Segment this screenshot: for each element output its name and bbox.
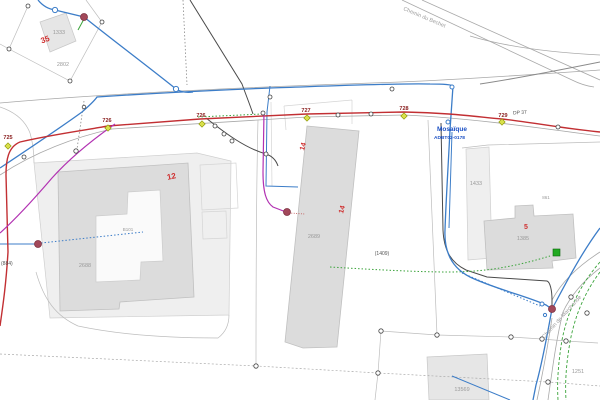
vertex-marker [26, 4, 30, 8]
vertex-marker [376, 371, 380, 375]
vertex-marker [7, 47, 11, 51]
blue-service-center[interactable] [266, 86, 298, 187]
network-node-code-label: ADBT02-0178 [434, 135, 465, 141]
building-13569 [427, 354, 489, 400]
vertex-marker [213, 124, 217, 128]
vertex-marker [230, 139, 234, 143]
vertex-marker [82, 105, 86, 109]
boundary-center-vertical [256, 120, 258, 366]
diagonal-street-edge-2 [422, 0, 600, 80]
network-node-name-label: Mosaïque [437, 126, 467, 133]
network-node-marker[interactable] [284, 209, 291, 216]
dark-network-line-topleft[interactable] [190, 0, 253, 114]
long-dashed-boundary [0, 354, 600, 386]
green-equipment-marker[interactable] [553, 249, 560, 256]
support-point-label-727: 727 [301, 108, 310, 114]
boundary-mid-connectors [375, 331, 381, 400]
vertex-marker [336, 113, 340, 117]
vertex-marker [264, 152, 268, 156]
dark-network-line-right[interactable] [441, 123, 552, 308]
support-point-diamond-728[interactable] [401, 113, 407, 119]
vertex-marker [546, 380, 550, 384]
support-point-label-728: 728 [399, 106, 408, 112]
green-dashed-line-br-2[interactable] [566, 272, 600, 400]
blue-node-marker[interactable] [450, 85, 454, 89]
parcel-label-1385: 1385 [517, 236, 529, 242]
parcel-label-1433: 1433 [470, 181, 482, 187]
vertex-marker [100, 20, 104, 24]
building-2689 [285, 126, 359, 348]
vertex-marker [379, 329, 383, 333]
support-point-label-726: 726 [102, 118, 111, 124]
vertex-marker [261, 111, 265, 115]
network-node-marker[interactable] [81, 14, 88, 21]
vertex-marker [369, 112, 373, 116]
blue-node-marker[interactable] [173, 86, 178, 91]
blue-node-marker[interactable] [52, 7, 57, 12]
boundary-right-vertical [428, 120, 437, 335]
street-fork-branch [470, 36, 600, 55]
street-label-marchande: Chemin de Marchande [541, 295, 583, 340]
parcel-label-13569: 13569 [454, 387, 469, 393]
vertex-marker [390, 87, 394, 91]
vertex-marker [74, 149, 78, 153]
support-point-diamond-726b[interactable] [199, 121, 205, 127]
support-point-label-729: 729 [498, 113, 507, 119]
blue-node-marker[interactable] [543, 313, 546, 316]
street-br-edge-2 [548, 268, 600, 400]
blue-node-marker[interactable] [540, 302, 544, 306]
vertex-marker [254, 364, 258, 368]
support-point-diamond-727[interactable] [304, 115, 310, 121]
vertex-marker [564, 339, 568, 343]
support-point-label-726b: 726 [196, 113, 205, 119]
map-viewport[interactable]: Chemin du Bechet Chemin de Marchande DP … [0, 0, 600, 400]
parcel-label-2689: 2689 [308, 234, 320, 240]
support-point-label-725: 725 [3, 135, 12, 141]
plot-number-5: 5 [524, 224, 528, 231]
vertex-marker [569, 295, 573, 299]
cable-ref-label-884: (884) [1, 261, 13, 267]
network-node-marker[interactable] [35, 241, 42, 248]
vertex-marker [268, 95, 272, 99]
road-ref-label: DP 37 [513, 110, 527, 117]
diagonal-street-edge-1 [402, 0, 594, 87]
blue-node-marker[interactable] [446, 120, 450, 124]
vertex-marker [585, 311, 589, 315]
parcel-label-B101: B101 [123, 227, 134, 232]
parcel-label-861: 861 [542, 195, 550, 200]
vertex-marker [556, 125, 560, 129]
parcel-label-1333: 1333 [53, 30, 65, 36]
parcel-label-2688: 2688 [79, 263, 91, 269]
vertex-marker [435, 333, 439, 337]
parcel-label-1251: 1251 [572, 369, 584, 375]
building-1385 [484, 205, 576, 270]
support-point-diamond-725[interactable] [5, 143, 11, 149]
cable-ref-label-1409: (1409) [375, 251, 390, 257]
dotted-boundary-top [183, 0, 187, 85]
network-node-marker[interactable] [549, 306, 556, 313]
vertex-marker [68, 79, 72, 83]
map-canvas[interactable]: Chemin du Bechet Chemin de Marchande DP … [0, 0, 600, 400]
boundary-right-top [462, 142, 600, 148]
parcels-and-buildings [34, 13, 576, 400]
parcel-label-2802: 2802 [57, 62, 69, 68]
vertex-marker [22, 155, 26, 159]
vertex-marker [222, 132, 226, 136]
vertex-marker [509, 335, 513, 339]
